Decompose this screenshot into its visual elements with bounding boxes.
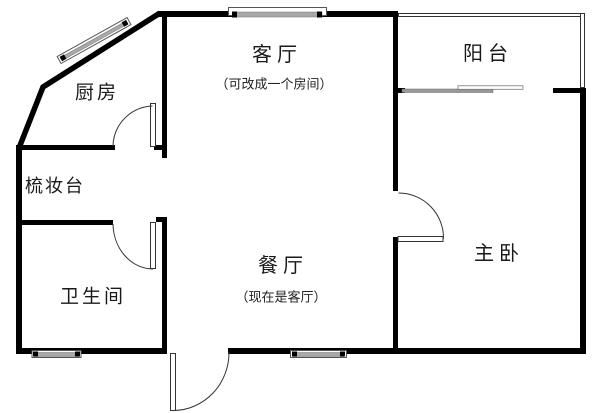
window-cap xyxy=(33,352,38,357)
window-cap xyxy=(292,352,297,357)
wall-kitchen-bottom xyxy=(19,145,115,150)
wall-kitchen-diagonal xyxy=(19,13,160,148)
room-label-master-bedroom: 主卧 xyxy=(474,244,524,264)
window-glass xyxy=(233,12,322,17)
window-cap xyxy=(317,12,322,18)
window-glass xyxy=(293,353,344,357)
wall-living-balcony-divider xyxy=(393,11,398,88)
floorplan-canvas: 厨房 客厅 （可改成一个房间） 阳台 梳妆台 卫生间 餐厅 （现在是客厅） 主卧 xyxy=(0,0,600,413)
door-leaf-entrance xyxy=(171,354,176,411)
sliding-door-balcony xyxy=(402,86,523,93)
balcony-wall-top xyxy=(399,14,585,17)
wall-kitchen-living-divider xyxy=(162,11,167,158)
door-arc-bathroom xyxy=(113,224,153,269)
room-label-bathroom: 卫生间 xyxy=(60,288,126,307)
window-cap xyxy=(232,12,237,18)
wall-top-right-segment xyxy=(317,11,398,17)
door-leaf-bedroom xyxy=(398,237,443,242)
wall-bedroom-divider-lower xyxy=(393,237,398,354)
room-label-dressing: 梳妆台 xyxy=(25,177,85,195)
room-label-balcony: 阳台 xyxy=(463,44,513,64)
window-bottom-dining xyxy=(291,351,347,358)
room-note-living: （可改成一个房间） xyxy=(215,78,332,91)
wall-bathroom-dining-divider xyxy=(162,217,167,354)
door-leaf-kitchen xyxy=(151,104,156,147)
door-arc-entrance xyxy=(174,352,230,411)
wall-top-left-segment xyxy=(158,11,238,17)
wall-balcony-bottom-right xyxy=(553,88,586,93)
door-arc-bedroom xyxy=(399,193,444,239)
balcony-wall-right xyxy=(581,14,585,88)
window-top-living xyxy=(229,8,327,18)
room-label-kitchen: 厨房 xyxy=(75,84,119,103)
window-glass xyxy=(34,353,79,357)
wall-bottom-right xyxy=(228,348,586,354)
wall-bathroom-top xyxy=(19,220,113,225)
wall-bathroom-door-stub xyxy=(156,217,167,222)
window-cap xyxy=(75,352,80,357)
window-bottom-bathroom xyxy=(32,351,81,358)
wall-bedroom-divider-upper xyxy=(393,88,398,191)
wall-right xyxy=(580,88,586,354)
room-note-dining: （现在是客厅） xyxy=(235,291,326,304)
sliding-door-panel-far xyxy=(458,86,523,90)
room-label-living: 客厅 xyxy=(252,45,302,65)
door-arc-kitchen xyxy=(113,106,153,146)
room-label-dining: 餐厅 xyxy=(258,256,308,276)
wall-left xyxy=(16,145,22,354)
window-cap xyxy=(340,352,345,357)
door-leaf-bathroom xyxy=(151,223,156,269)
